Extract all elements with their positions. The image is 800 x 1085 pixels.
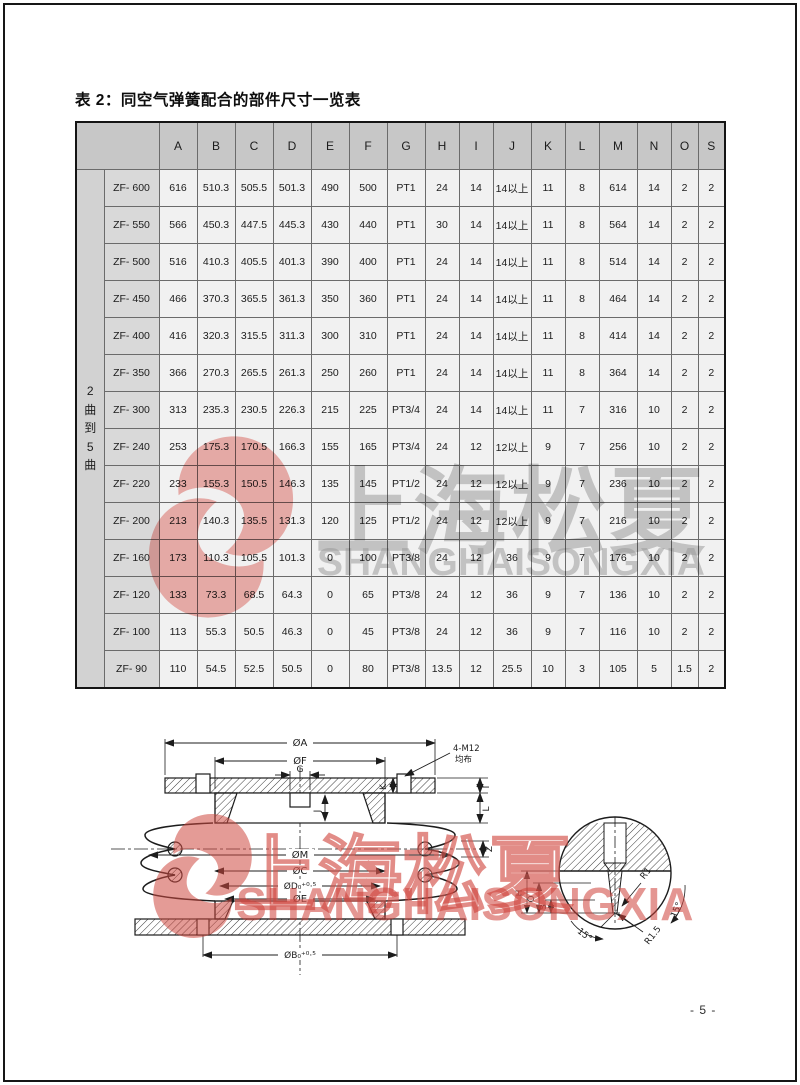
column-header: F [349, 122, 387, 170]
value-cell: 315.5 [235, 318, 273, 355]
table-row: ZF- 550566450.3447.5445.3430440PT1301414… [76, 207, 725, 244]
value-cell: 45 [349, 614, 387, 651]
value-cell: 54.5 [197, 651, 235, 689]
value-cell: 215 [311, 392, 349, 429]
dim-label-z: Z [485, 846, 495, 852]
value-cell: 68.5 [235, 577, 273, 614]
dim-label-e: ØE [293, 893, 307, 905]
value-cell: 24 [425, 466, 459, 503]
value-cell: 216 [599, 503, 637, 540]
table-row: ZF- 450466370.3365.5361.3350360PT1241414… [76, 281, 725, 318]
value-cell: 105 [599, 651, 637, 689]
value-cell: 14 [637, 207, 671, 244]
value-cell: 135.5 [235, 503, 273, 540]
value-cell: 55.3 [197, 614, 235, 651]
value-cell: 14以上 [493, 318, 531, 355]
value-cell: 24 [425, 281, 459, 318]
value-cell: 261.3 [273, 355, 311, 392]
value-cell: 14 [459, 244, 493, 281]
value-cell: 365.5 [235, 281, 273, 318]
value-cell: 400 [349, 244, 387, 281]
value-cell: 173 [159, 540, 197, 577]
column-header: K [531, 122, 565, 170]
value-cell: 2 [671, 318, 698, 355]
value-cell: 8 [565, 170, 599, 207]
value-cell: 2 [671, 392, 698, 429]
value-cell: 50.5 [235, 614, 273, 651]
value-cell: 2 [698, 614, 725, 651]
value-cell: 311.3 [273, 318, 311, 355]
column-header: M [599, 122, 637, 170]
model-label: ZF- 120 [104, 577, 159, 614]
value-cell: 73.3 [197, 577, 235, 614]
value-cell: 11 [531, 392, 565, 429]
dim-label-a: ØA [293, 737, 308, 749]
value-cell: 490 [311, 170, 349, 207]
value-cell: 155.3 [197, 466, 235, 503]
value-cell: 125 [349, 503, 387, 540]
value-cell: 466 [159, 281, 197, 318]
model-label: ZF- 300 [104, 392, 159, 429]
value-cell: 146.3 [273, 466, 311, 503]
value-cell: 410.3 [197, 244, 235, 281]
value-cell: 24 [425, 540, 459, 577]
value-cell: 8 [565, 355, 599, 392]
value-cell: 2 [671, 429, 698, 466]
value-cell: 65 [349, 577, 387, 614]
value-cell: 226.3 [273, 392, 311, 429]
value-cell: 120 [311, 503, 349, 540]
model-label: ZF- 160 [104, 540, 159, 577]
value-cell: PT1 [387, 281, 425, 318]
value-cell: PT1 [387, 170, 425, 207]
value-cell: 25.5 [493, 651, 531, 689]
value-cell: 9 [531, 503, 565, 540]
value-cell: 52.5 [235, 651, 273, 689]
page-title: 表 2：同空气弹簧配合的部件尺寸一览表 [75, 88, 361, 110]
value-cell: 165 [349, 429, 387, 466]
value-cell: PT3/8 [387, 651, 425, 689]
row-group-label: 2曲到5曲 [76, 170, 104, 689]
value-cell: 230.5 [235, 392, 273, 429]
value-cell: 11 [531, 207, 565, 244]
parts-table-container: ABCDEFGHIJKLMNOS 2曲到5曲ZF- 600616510.3505… [75, 121, 726, 689]
value-cell: 10 [637, 392, 671, 429]
value-cell: 370.3 [197, 281, 235, 318]
value-cell: 2 [698, 651, 725, 689]
value-cell: 2 [671, 614, 698, 651]
value-cell: 3 [565, 651, 599, 689]
value-cell: 7 [565, 503, 599, 540]
value-cell: 30 [425, 207, 459, 244]
value-cell: 50.5 [273, 651, 311, 689]
value-cell: 14以上 [493, 207, 531, 244]
value-cell: 14以上 [493, 170, 531, 207]
value-cell: 12 [459, 429, 493, 466]
detail-dim-s: S [539, 904, 549, 910]
value-cell: 11 [531, 281, 565, 318]
value-cell: 0 [311, 614, 349, 651]
value-cell: 505.5 [235, 170, 273, 207]
dim-label-i: I [482, 786, 492, 789]
value-cell: 2 [698, 281, 725, 318]
value-cell: 14以上 [493, 392, 531, 429]
value-cell: 36 [493, 614, 531, 651]
value-cell: 2 [671, 207, 698, 244]
value-cell: 24 [425, 170, 459, 207]
dim-label-g: G [297, 765, 304, 775]
value-cell: 116 [599, 614, 637, 651]
column-header: I [459, 122, 493, 170]
value-cell: 253 [159, 429, 197, 466]
value-cell: 2 [698, 355, 725, 392]
value-cell: 46.3 [273, 614, 311, 651]
column-header: D [273, 122, 311, 170]
value-cell: 5 [637, 651, 671, 689]
column-header: A [159, 122, 197, 170]
value-cell: PT3/4 [387, 429, 425, 466]
value-cell: 616 [159, 170, 197, 207]
value-cell: 131.3 [273, 503, 311, 540]
model-label: ZF- 200 [104, 503, 159, 540]
value-cell: 10 [637, 466, 671, 503]
value-cell: 12 [459, 540, 493, 577]
dim-label-b: ØB₀⁺⁰·⁵ [284, 950, 316, 961]
parts-dimension-table: ABCDEFGHIJKLMNOS 2曲到5曲ZF- 600616510.3505… [75, 121, 726, 689]
value-cell: PT3/8 [387, 577, 425, 614]
model-label: ZF- 500 [104, 244, 159, 281]
air-spring-drawing: ØA ØF G 4-M12 均布 J K I L Z ØM ØC ØD₀⁺⁰·⁵… [75, 723, 725, 985]
value-cell: 320.3 [197, 318, 235, 355]
value-cell: 12 [459, 614, 493, 651]
value-cell: 24 [425, 614, 459, 651]
value-cell: 7 [565, 392, 599, 429]
value-cell: 100 [349, 540, 387, 577]
value-cell: 2 [671, 577, 698, 614]
model-label: ZF- 550 [104, 207, 159, 244]
value-cell: 14 [459, 355, 493, 392]
table-row: ZF- 500516410.3405.5401.3390400PT1241414… [76, 244, 725, 281]
value-cell: 12 [459, 503, 493, 540]
value-cell: 36 [493, 540, 531, 577]
value-cell: 300 [311, 318, 349, 355]
value-cell: 10 [637, 577, 671, 614]
value-cell: 13.5 [425, 651, 459, 689]
value-cell: 8 [565, 207, 599, 244]
table-row: ZF- 400416320.3315.5311.3300310PT1241414… [76, 318, 725, 355]
value-cell: PT1 [387, 207, 425, 244]
column-header: H [425, 122, 459, 170]
value-cell: 10 [637, 503, 671, 540]
value-cell: 2 [698, 392, 725, 429]
value-cell: 2 [698, 170, 725, 207]
dim-label-j: J [313, 810, 323, 814]
value-cell: 447.5 [235, 207, 273, 244]
model-label: ZF- 100 [104, 614, 159, 651]
value-cell: 265.5 [235, 355, 273, 392]
value-cell: 501.3 [273, 170, 311, 207]
value-cell: 514 [599, 244, 637, 281]
value-cell: PT1 [387, 355, 425, 392]
value-cell: PT1/2 [387, 466, 425, 503]
value-cell: 14以上 [493, 281, 531, 318]
detail-dim-h: H [515, 890, 525, 897]
table-row: ZF- 200213140.3135.5131.3120125PT1/22412… [76, 503, 725, 540]
dim-label-m: ØM [292, 849, 309, 861]
value-cell: 12 [459, 466, 493, 503]
value-cell: 2 [698, 540, 725, 577]
value-cell: 101.3 [273, 540, 311, 577]
bolt-note-line1: 4-M12 [453, 744, 480, 754]
value-cell: 440 [349, 207, 387, 244]
value-cell: 12以上 [493, 429, 531, 466]
value-cell: 133 [159, 577, 197, 614]
value-cell: 12以上 [493, 503, 531, 540]
table-row: ZF- 220233155.3150.5146.3135145PT1/22412… [76, 466, 725, 503]
value-cell: 2 [671, 244, 698, 281]
value-cell: 250 [311, 355, 349, 392]
value-cell: 7 [565, 540, 599, 577]
value-cell: 350 [311, 281, 349, 318]
value-cell: 405.5 [235, 244, 273, 281]
value-cell: 2 [671, 170, 698, 207]
column-header: C [235, 122, 273, 170]
value-cell: 80 [349, 651, 387, 689]
value-cell: 7 [565, 577, 599, 614]
value-cell: 416 [159, 318, 197, 355]
detail-radius-r15: R1.5 [643, 925, 664, 947]
value-cell: 313 [159, 392, 197, 429]
value-cell: 310 [349, 318, 387, 355]
value-cell: PT1 [387, 318, 425, 355]
model-label: ZF- 350 [104, 355, 159, 392]
value-cell: 2 [671, 503, 698, 540]
value-cell: 11 [531, 244, 565, 281]
value-cell: 14 [637, 244, 671, 281]
value-cell: 401.3 [273, 244, 311, 281]
value-cell: 213 [159, 503, 197, 540]
value-cell: PT1/2 [387, 503, 425, 540]
column-header: O [671, 122, 698, 170]
value-cell: 175.3 [197, 429, 235, 466]
value-cell: 1.5 [671, 651, 698, 689]
value-cell: 316 [599, 392, 637, 429]
value-cell: 256 [599, 429, 637, 466]
value-cell: 64.3 [273, 577, 311, 614]
value-cell: 110.3 [197, 540, 235, 577]
value-cell: 14 [637, 355, 671, 392]
value-cell: 113 [159, 614, 197, 651]
value-cell: 14以上 [493, 355, 531, 392]
value-cell: 24 [425, 429, 459, 466]
table-row: 2曲到5曲ZF- 600616510.3505.5501.3490500PT12… [76, 170, 725, 207]
bolt-note-line2: 均布 [455, 754, 472, 765]
value-cell: 390 [311, 244, 349, 281]
value-cell: 105.5 [235, 540, 273, 577]
value-cell: PT3/8 [387, 540, 425, 577]
value-cell: 0 [311, 651, 349, 689]
value-cell: 445.3 [273, 207, 311, 244]
value-cell: 110 [159, 651, 197, 689]
value-cell: 510.3 [197, 170, 235, 207]
model-label: ZF- 400 [104, 318, 159, 355]
column-header: N [637, 122, 671, 170]
value-cell: 225 [349, 392, 387, 429]
value-cell: 24 [425, 392, 459, 429]
value-cell: 14 [637, 318, 671, 355]
column-header: G [387, 122, 425, 170]
dim-label-l: L [482, 806, 492, 811]
model-label: ZF- 240 [104, 429, 159, 466]
value-cell: 430 [311, 207, 349, 244]
value-cell: 14 [459, 281, 493, 318]
value-cell: 36 [493, 577, 531, 614]
value-cell: 12以上 [493, 466, 531, 503]
value-cell: 0 [311, 577, 349, 614]
value-cell: 360 [349, 281, 387, 318]
value-cell: 7 [565, 466, 599, 503]
value-cell: 500 [349, 170, 387, 207]
value-cell: 2 [698, 318, 725, 355]
value-cell: 2 [671, 540, 698, 577]
header-row: ABCDEFGHIJKLMNOS [76, 122, 725, 170]
value-cell: 24 [425, 244, 459, 281]
value-cell: 9 [531, 540, 565, 577]
value-cell: 2 [698, 577, 725, 614]
column-header: B [197, 122, 235, 170]
value-cell: 8 [565, 281, 599, 318]
value-cell: 366 [159, 355, 197, 392]
value-cell: 2 [671, 466, 698, 503]
value-cell: 12 [459, 651, 493, 689]
value-cell: 9 [531, 466, 565, 503]
value-cell: 10 [637, 540, 671, 577]
value-cell: 24 [425, 318, 459, 355]
value-cell: 614 [599, 170, 637, 207]
value-cell: 135 [311, 466, 349, 503]
value-cell: 236 [599, 466, 637, 503]
detail-angle-1: 15° [575, 927, 594, 945]
value-cell: 2 [671, 281, 698, 318]
value-cell: 14 [637, 281, 671, 318]
value-cell: 24 [425, 355, 459, 392]
corner-cell [76, 122, 159, 170]
value-cell: 9 [531, 429, 565, 466]
table-row: ZF- 240253175.3170.5166.3155165PT3/42412… [76, 429, 725, 466]
table-row: ZF- 160173110.3105.5101.30100PT3/8241236… [76, 540, 725, 577]
value-cell: 14 [459, 170, 493, 207]
value-cell: 414 [599, 318, 637, 355]
value-cell: 14以上 [493, 244, 531, 281]
value-cell: 7 [565, 614, 599, 651]
value-cell: 233 [159, 466, 197, 503]
model-label: ZF- 450 [104, 281, 159, 318]
value-cell: 14 [459, 207, 493, 244]
value-cell: 464 [599, 281, 637, 318]
page-number: - 5 - [690, 1003, 716, 1017]
model-label: ZF- 220 [104, 466, 159, 503]
value-cell: 11 [531, 170, 565, 207]
value-cell: 516 [159, 244, 197, 281]
model-label: ZF- 90 [104, 651, 159, 689]
dim-label-d: ØD₀⁺⁰·⁵ [284, 881, 317, 892]
value-cell: 9 [531, 614, 565, 651]
value-cell: 2 [698, 466, 725, 503]
value-cell: 9 [531, 577, 565, 614]
column-header: L [565, 122, 599, 170]
table-row: ZF- 12013373.368.564.3065PT3/82412369713… [76, 577, 725, 614]
column-header: J [493, 122, 531, 170]
table-row: ZF- 10011355.350.546.3045PT3/82412369711… [76, 614, 725, 651]
value-cell: 2 [698, 503, 725, 540]
detail-dim-o: O [527, 895, 537, 902]
table-row: ZF- 300313235.3230.5226.3215225PT3/42414… [76, 392, 725, 429]
value-cell: 260 [349, 355, 387, 392]
value-cell: 24 [425, 503, 459, 540]
value-cell: 176 [599, 540, 637, 577]
value-cell: PT3/4 [387, 392, 425, 429]
table-row: ZF- 9011054.552.550.5080PT3/813.51225.51… [76, 651, 725, 689]
model-label: ZF- 600 [104, 170, 159, 207]
value-cell: 8 [565, 244, 599, 281]
value-cell: 361.3 [273, 281, 311, 318]
value-cell: 10 [637, 614, 671, 651]
value-cell: 8 [565, 318, 599, 355]
value-cell: 2 [698, 429, 725, 466]
value-cell: 155 [311, 429, 349, 466]
value-cell: 150.5 [235, 466, 273, 503]
value-cell: 564 [599, 207, 637, 244]
table-row: ZF- 350366270.3265.5261.3250260PT1241414… [76, 355, 725, 392]
value-cell: 140.3 [197, 503, 235, 540]
value-cell: PT1 [387, 244, 425, 281]
value-cell: 14 [637, 170, 671, 207]
value-cell: 2 [671, 355, 698, 392]
column-header: S [698, 122, 725, 170]
value-cell: 0 [311, 540, 349, 577]
value-cell: 14 [459, 318, 493, 355]
dim-label-c: ØC [293, 865, 308, 877]
value-cell: 145 [349, 466, 387, 503]
value-cell: 2 [698, 244, 725, 281]
value-cell: 7 [565, 429, 599, 466]
value-cell: 235.3 [197, 392, 235, 429]
value-cell: 170.5 [235, 429, 273, 466]
value-cell: 270.3 [197, 355, 235, 392]
value-cell: 11 [531, 318, 565, 355]
value-cell: 24 [425, 577, 459, 614]
value-cell: 136 [599, 577, 637, 614]
value-cell: 166.3 [273, 429, 311, 466]
value-cell: 12 [459, 577, 493, 614]
value-cell: 14 [459, 392, 493, 429]
value-cell: 10 [531, 651, 565, 689]
value-cell: 450.3 [197, 207, 235, 244]
column-header: E [311, 122, 349, 170]
value-cell: 10 [637, 429, 671, 466]
value-cell: 2 [698, 207, 725, 244]
value-cell: 566 [159, 207, 197, 244]
value-cell: 11 [531, 355, 565, 392]
value-cell: PT3/8 [387, 614, 425, 651]
value-cell: 364 [599, 355, 637, 392]
